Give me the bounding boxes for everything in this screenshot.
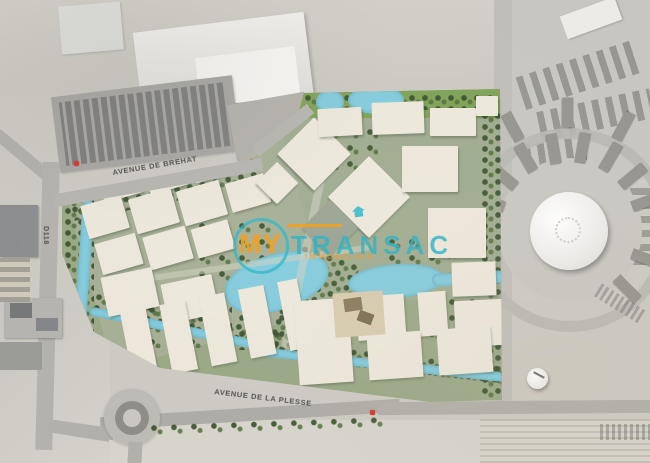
street-label-plesse: AVENUE DE LA PLESSE — [214, 387, 312, 408]
building — [451, 261, 496, 297]
entrance-marker — [370, 410, 375, 415]
house-row — [0, 258, 30, 302]
watermark-tagline: IMMOBILIER — [305, 252, 375, 261]
road-south-branch — [127, 442, 142, 463]
aerial-site-plan-photo: AVENUE DE BREHAT AVENUE DE LA PLESSE D11… — [0, 0, 650, 463]
building — [317, 107, 362, 137]
building — [371, 101, 424, 135]
building — [430, 108, 476, 136]
street-label-d118: D118 — [42, 226, 49, 245]
retail-building — [58, 1, 124, 54]
industrial-building — [0, 342, 42, 370]
road-avenue-plesse-east — [378, 400, 650, 415]
roundabout-core — [123, 409, 141, 427]
watermark-brand-my: MY — [239, 229, 282, 260]
building — [402, 146, 458, 192]
industrial-building — [0, 205, 38, 257]
industrial-roof — [36, 318, 58, 331]
parked-cars — [600, 424, 650, 440]
building — [476, 96, 498, 116]
dome-center-detail — [555, 217, 581, 243]
water-tower — [527, 368, 548, 389]
entrance-marker — [74, 161, 79, 166]
watermark-overline — [287, 224, 342, 227]
industrial-roof — [10, 303, 32, 318]
house — [563, 98, 574, 128]
